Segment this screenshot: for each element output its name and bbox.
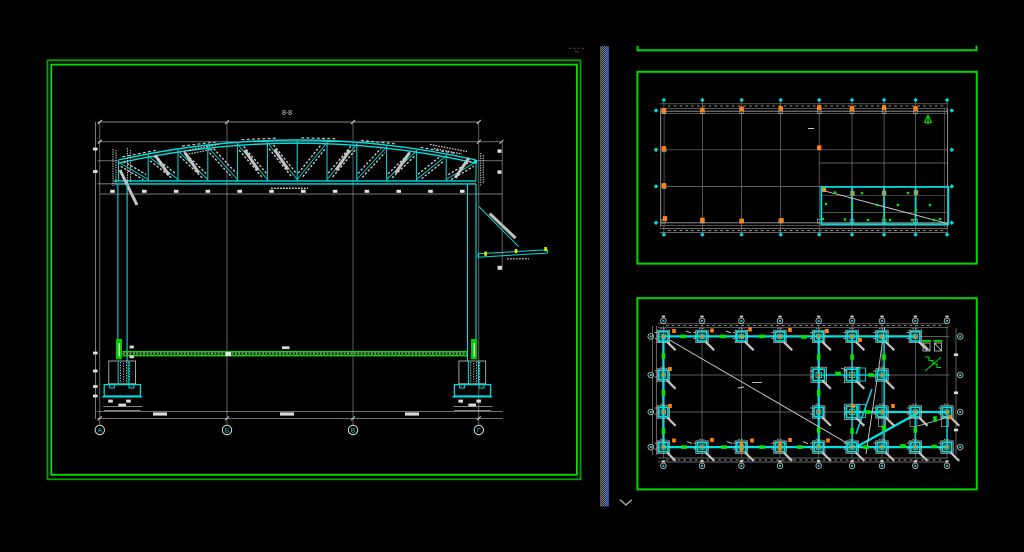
svg-text:Б: Б (225, 428, 229, 435)
svg-text:8-8: 8-8 (282, 110, 292, 117)
svg-text:Г: Г (477, 428, 481, 435)
svg-text:А: А (98, 428, 103, 435)
svg-text:В: В (351, 428, 355, 435)
